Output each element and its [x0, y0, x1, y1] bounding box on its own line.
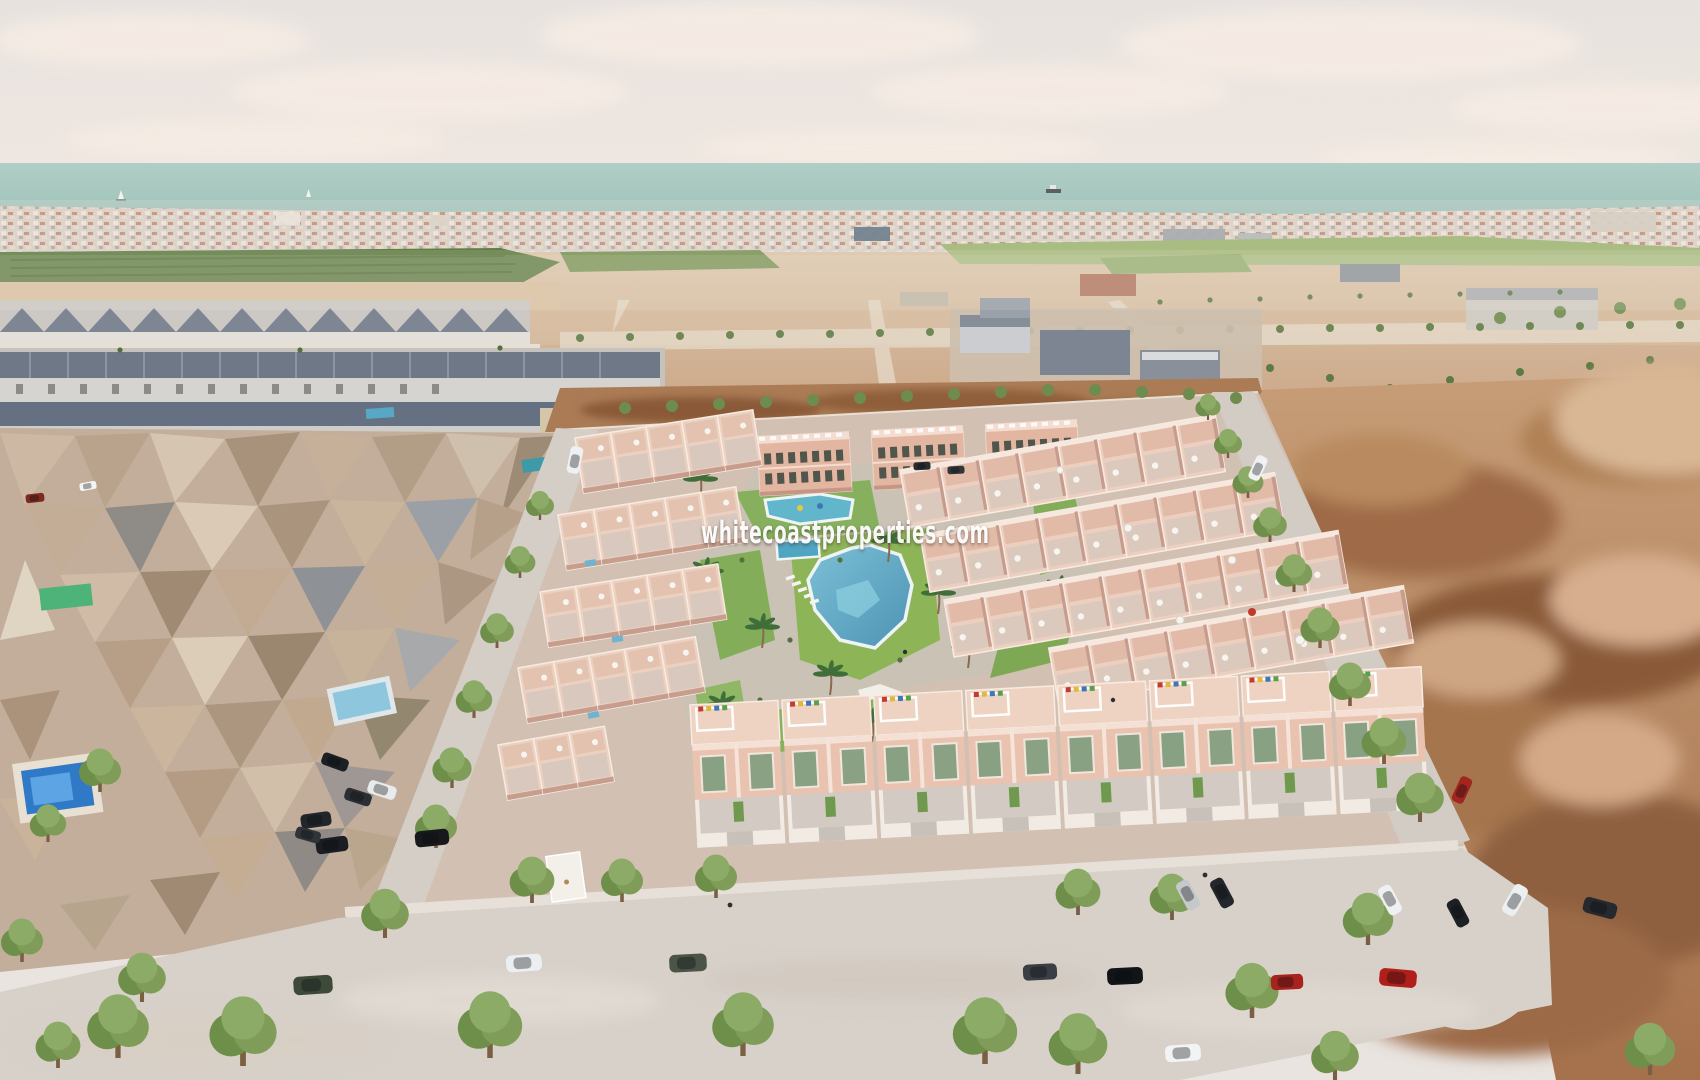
parked-car [1379, 968, 1418, 989]
parked-car [1023, 963, 1058, 981]
distant-car [913, 462, 930, 471]
parked-car [506, 953, 543, 972]
parked-car [293, 974, 333, 995]
parked-car [1107, 967, 1144, 986]
property-aerial-render: whitecoastproperties.com [0, 0, 1700, 1080]
apartment-block [757, 431, 852, 496]
parked-car [669, 953, 707, 973]
parked-car [1270, 974, 1303, 991]
private-pool [366, 407, 395, 419]
watermark: whitecoastproperties.com [701, 516, 990, 550]
haze [0, 250, 1700, 310]
driving-car [1165, 1043, 1202, 1062]
sky [0, 0, 1700, 178]
red-umbrella [1248, 608, 1256, 616]
distant-car [947, 466, 964, 475]
